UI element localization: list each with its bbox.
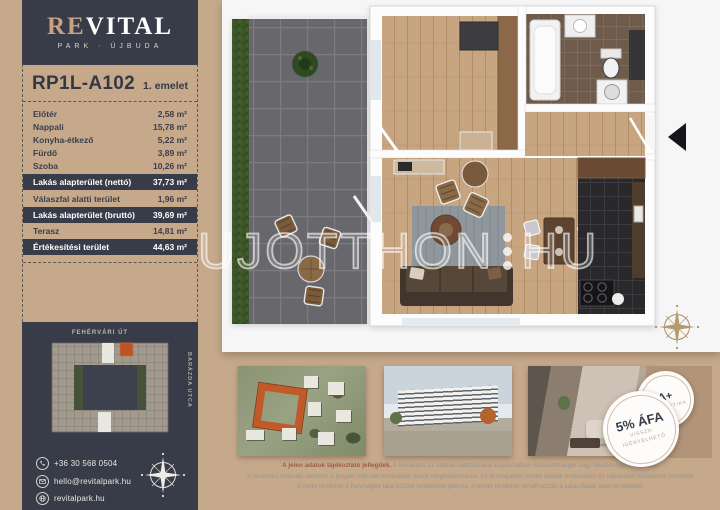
area-row: Lakás alapterület (nettó)37,73 m²: [23, 174, 197, 190]
room-furdo: [525, 14, 645, 104]
area-value: 37,73 m²: [153, 177, 187, 187]
bath-cabinet: [629, 30, 645, 80]
area-value: 44,63 m²: [153, 242, 187, 252]
floorplan-plate: [222, 0, 720, 352]
area-row: Előtér2,58 m²: [23, 107, 197, 120]
area-label: Válaszfal alatti terület: [33, 194, 120, 204]
photo-building-exterior: [384, 366, 512, 456]
compass-icon-plan: [654, 304, 700, 350]
room-eloter: [525, 112, 645, 156]
bowl: [612, 293, 624, 305]
terrace: [232, 16, 367, 324]
area-value: 10,26 m²: [153, 161, 187, 171]
outdoor-chair: [304, 286, 324, 306]
area-value: 1,96 m²: [158, 194, 187, 204]
area-label: Értékesítési terület: [33, 242, 109, 252]
floor-plan: [226, 0, 662, 340]
kitchen-sink: [634, 206, 643, 222]
brand-subtitle: PARK · ÚJBUDA: [58, 43, 163, 50]
brochure-page: REVITAL PARK · ÚJBUDA RP1L-A102 1. emele…: [0, 0, 720, 510]
street-label-right: BARÁZDA UTCA: [186, 352, 192, 408]
area-row: Értékesítési terület44,63 m²: [23, 239, 197, 255]
area-row: Terasz14,81 m²: [23, 224, 197, 237]
courtyard: [74, 365, 146, 410]
area-row: Lakás alapterület (bruttó)39,69 m²: [23, 207, 197, 223]
disclaimer-bold: A jelen adatok tájékoztató jellegűek.: [282, 462, 391, 469]
site-plan: [34, 338, 186, 446]
globe-icon: [36, 492, 49, 505]
stairwell-top: [102, 343, 114, 363]
unit-header: RP1L-A102 1. emelet: [23, 65, 197, 102]
pillow: [487, 267, 502, 280]
disclaimer-line2: A részletes műszaki tartalom a projekt m…: [228, 472, 714, 483]
contact-list: +36 30 568 0504 hello@revitalpark.hu rev…: [36, 457, 131, 510]
area-label: Lakás alapterület (nettó): [33, 177, 131, 187]
desk: [460, 132, 492, 150]
area-value: 39,69 m²: [153, 210, 187, 220]
disclaimer-line3: A nettó területek a helyiségek falai köz…: [228, 482, 714, 493]
kitchen-counter-side: [632, 182, 645, 278]
brand-name-accent: RE: [47, 13, 86, 40]
area-row: Nappali15,78 m²: [23, 120, 197, 133]
area-label: Terasz: [33, 226, 59, 236]
area-value: 15,78 m²: [153, 122, 187, 132]
area-value: 14,81 m²: [153, 226, 187, 236]
highlighted-building: [253, 383, 307, 433]
area-row: Fürdő3,89 m²: [23, 147, 197, 160]
unit-id: RP1L-A102: [32, 73, 135, 95]
area-label: Nappali: [33, 122, 64, 132]
contact-website-text: revitalpark.hu: [54, 494, 105, 503]
email-icon: [36, 475, 49, 488]
area-label: Szoba: [33, 161, 58, 171]
area-label: Fürdő: [33, 148, 57, 158]
disclaimer-line1-rest: A Beruházó az adatok változásával kapcso…: [391, 462, 660, 469]
brand-name: REVITAL: [47, 14, 173, 39]
compass-icon-map: [140, 452, 186, 498]
phone-icon: [36, 457, 49, 470]
room-konyha: [578, 158, 645, 314]
area-row: Szoba10,26 m²: [23, 160, 197, 173]
highlighted-unit: [120, 343, 133, 356]
area-value: 5,22 m²: [158, 135, 187, 145]
hedge: [232, 19, 249, 324]
contact-phone-text: +36 30 568 0504: [54, 459, 117, 468]
bedroom-window: [371, 40, 381, 100]
entrance-arrow-icon: [668, 123, 686, 151]
dining-table: [544, 218, 574, 264]
street-label-top: FEHÉRVÁRI ÚT: [22, 330, 178, 336]
area-row: Konyha-étkező5,22 m²: [23, 133, 197, 146]
side-table: [462, 161, 488, 187]
area-label: Előtér: [33, 109, 57, 119]
terrace-door-glass: [371, 176, 381, 222]
stairwell-bottom: [98, 412, 111, 432]
room-szoba: [382, 16, 518, 150]
area-label: Konyha-étkező: [33, 135, 93, 145]
toilet: [601, 49, 621, 58]
contact-phone[interactable]: +36 30 568 0504: [36, 457, 131, 470]
siteplan-block: FEHÉRVÁRI ÚT BARÁZDA UTCA +36 3: [22, 322, 198, 510]
unit-floor: 1. emelet: [143, 80, 188, 92]
living-window: [402, 318, 520, 326]
area-table: Előtér2,58 m²Nappali15,78 m²Konyha-étkez…: [23, 102, 197, 263]
unit-info-panel: RP1L-A102 1. emelet Előtér2,58 m²Nappali…: [22, 64, 198, 322]
interior-table: [570, 438, 600, 448]
brand-name-rest: VITAL: [86, 13, 173, 40]
contact-website[interactable]: revitalpark.hu: [36, 492, 131, 505]
area-value: 2,58 m²: [158, 109, 187, 119]
contact-email-text: hello@revitalpark.hu: [54, 477, 131, 486]
area-value: 3,89 m²: [158, 148, 187, 158]
contact-email[interactable]: hello@revitalpark.hu: [36, 475, 131, 488]
vat-badge: 5% ÁFA VISSZA- IGÉNYELHETŐ: [603, 391, 679, 467]
interior-plant: [558, 396, 570, 410]
brand-logo: REVITAL PARK · ÚJBUDA: [22, 0, 198, 64]
area-label: Lakás alapterület (bruttó): [33, 210, 135, 220]
kitchen-counter-top: [578, 158, 645, 178]
area-row: Válaszfal alatti terület1,96 m²: [23, 192, 197, 205]
wardrobe: [460, 22, 498, 50]
photo-aerial-view: [238, 366, 366, 456]
